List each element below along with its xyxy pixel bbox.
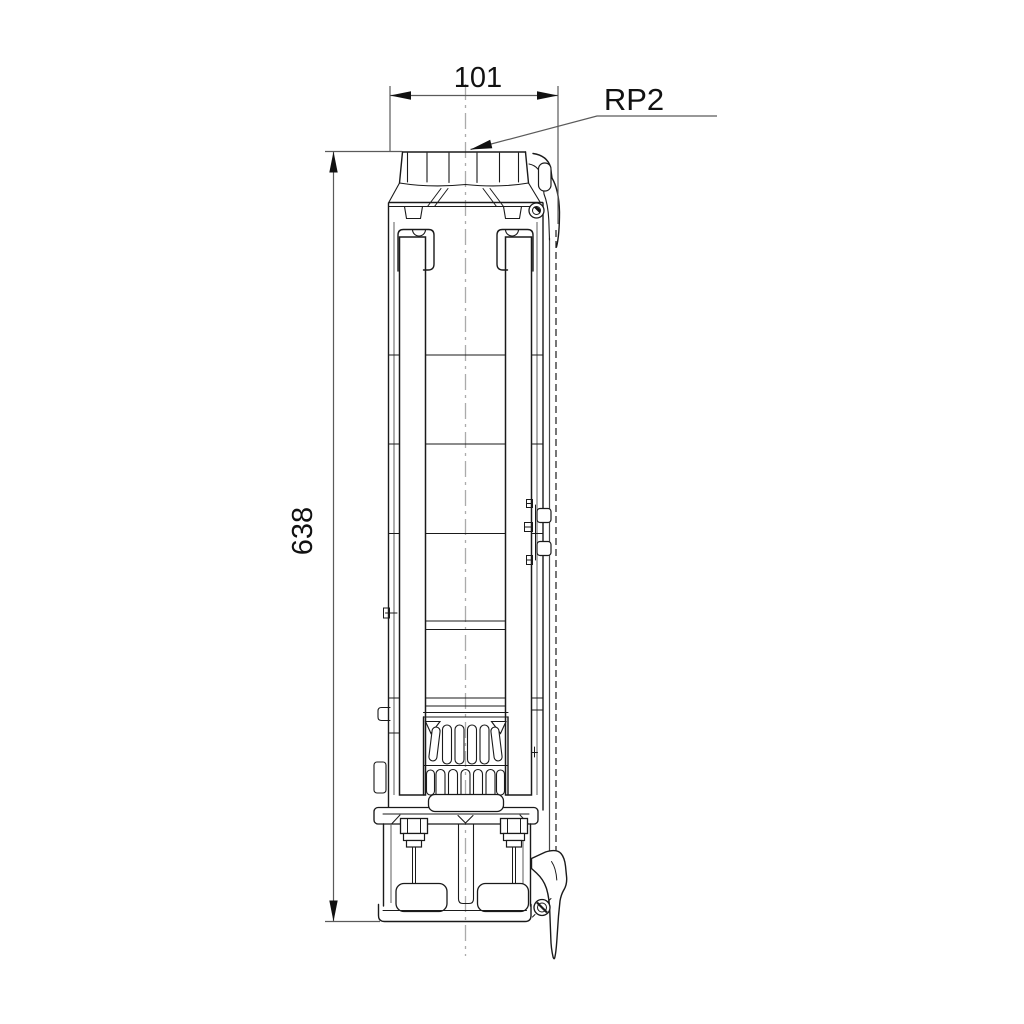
width-dimension: 101 [390,62,558,224]
leader-arrow [471,140,493,150]
width-dimension-label: 101 [454,62,502,94]
dim-arrow-left [390,91,411,99]
dim-arrow-right [537,91,558,99]
height-dimension: 638 [287,152,402,922]
casing-left-details [374,608,400,793]
height-dimension-label: 638 [287,507,319,555]
guard-screw-top [529,203,544,218]
thread-callout: RP2 [471,82,718,150]
dim-arrow-top [329,152,337,173]
drawing-canvas: 101 638 RP2 [0,0,1024,1024]
pump-dimensional-drawing: 101 638 RP2 [0,0,1024,1024]
cable-guard-bottom-blade [532,851,567,959]
strainer-bottom-band [429,795,504,812]
pump-outline [374,152,567,959]
cable-guard-top-hook [529,154,560,248]
dim-arrow-bottom [329,901,337,922]
thread-lines [408,153,519,183]
thread-callout-label: RP2 [604,82,664,117]
